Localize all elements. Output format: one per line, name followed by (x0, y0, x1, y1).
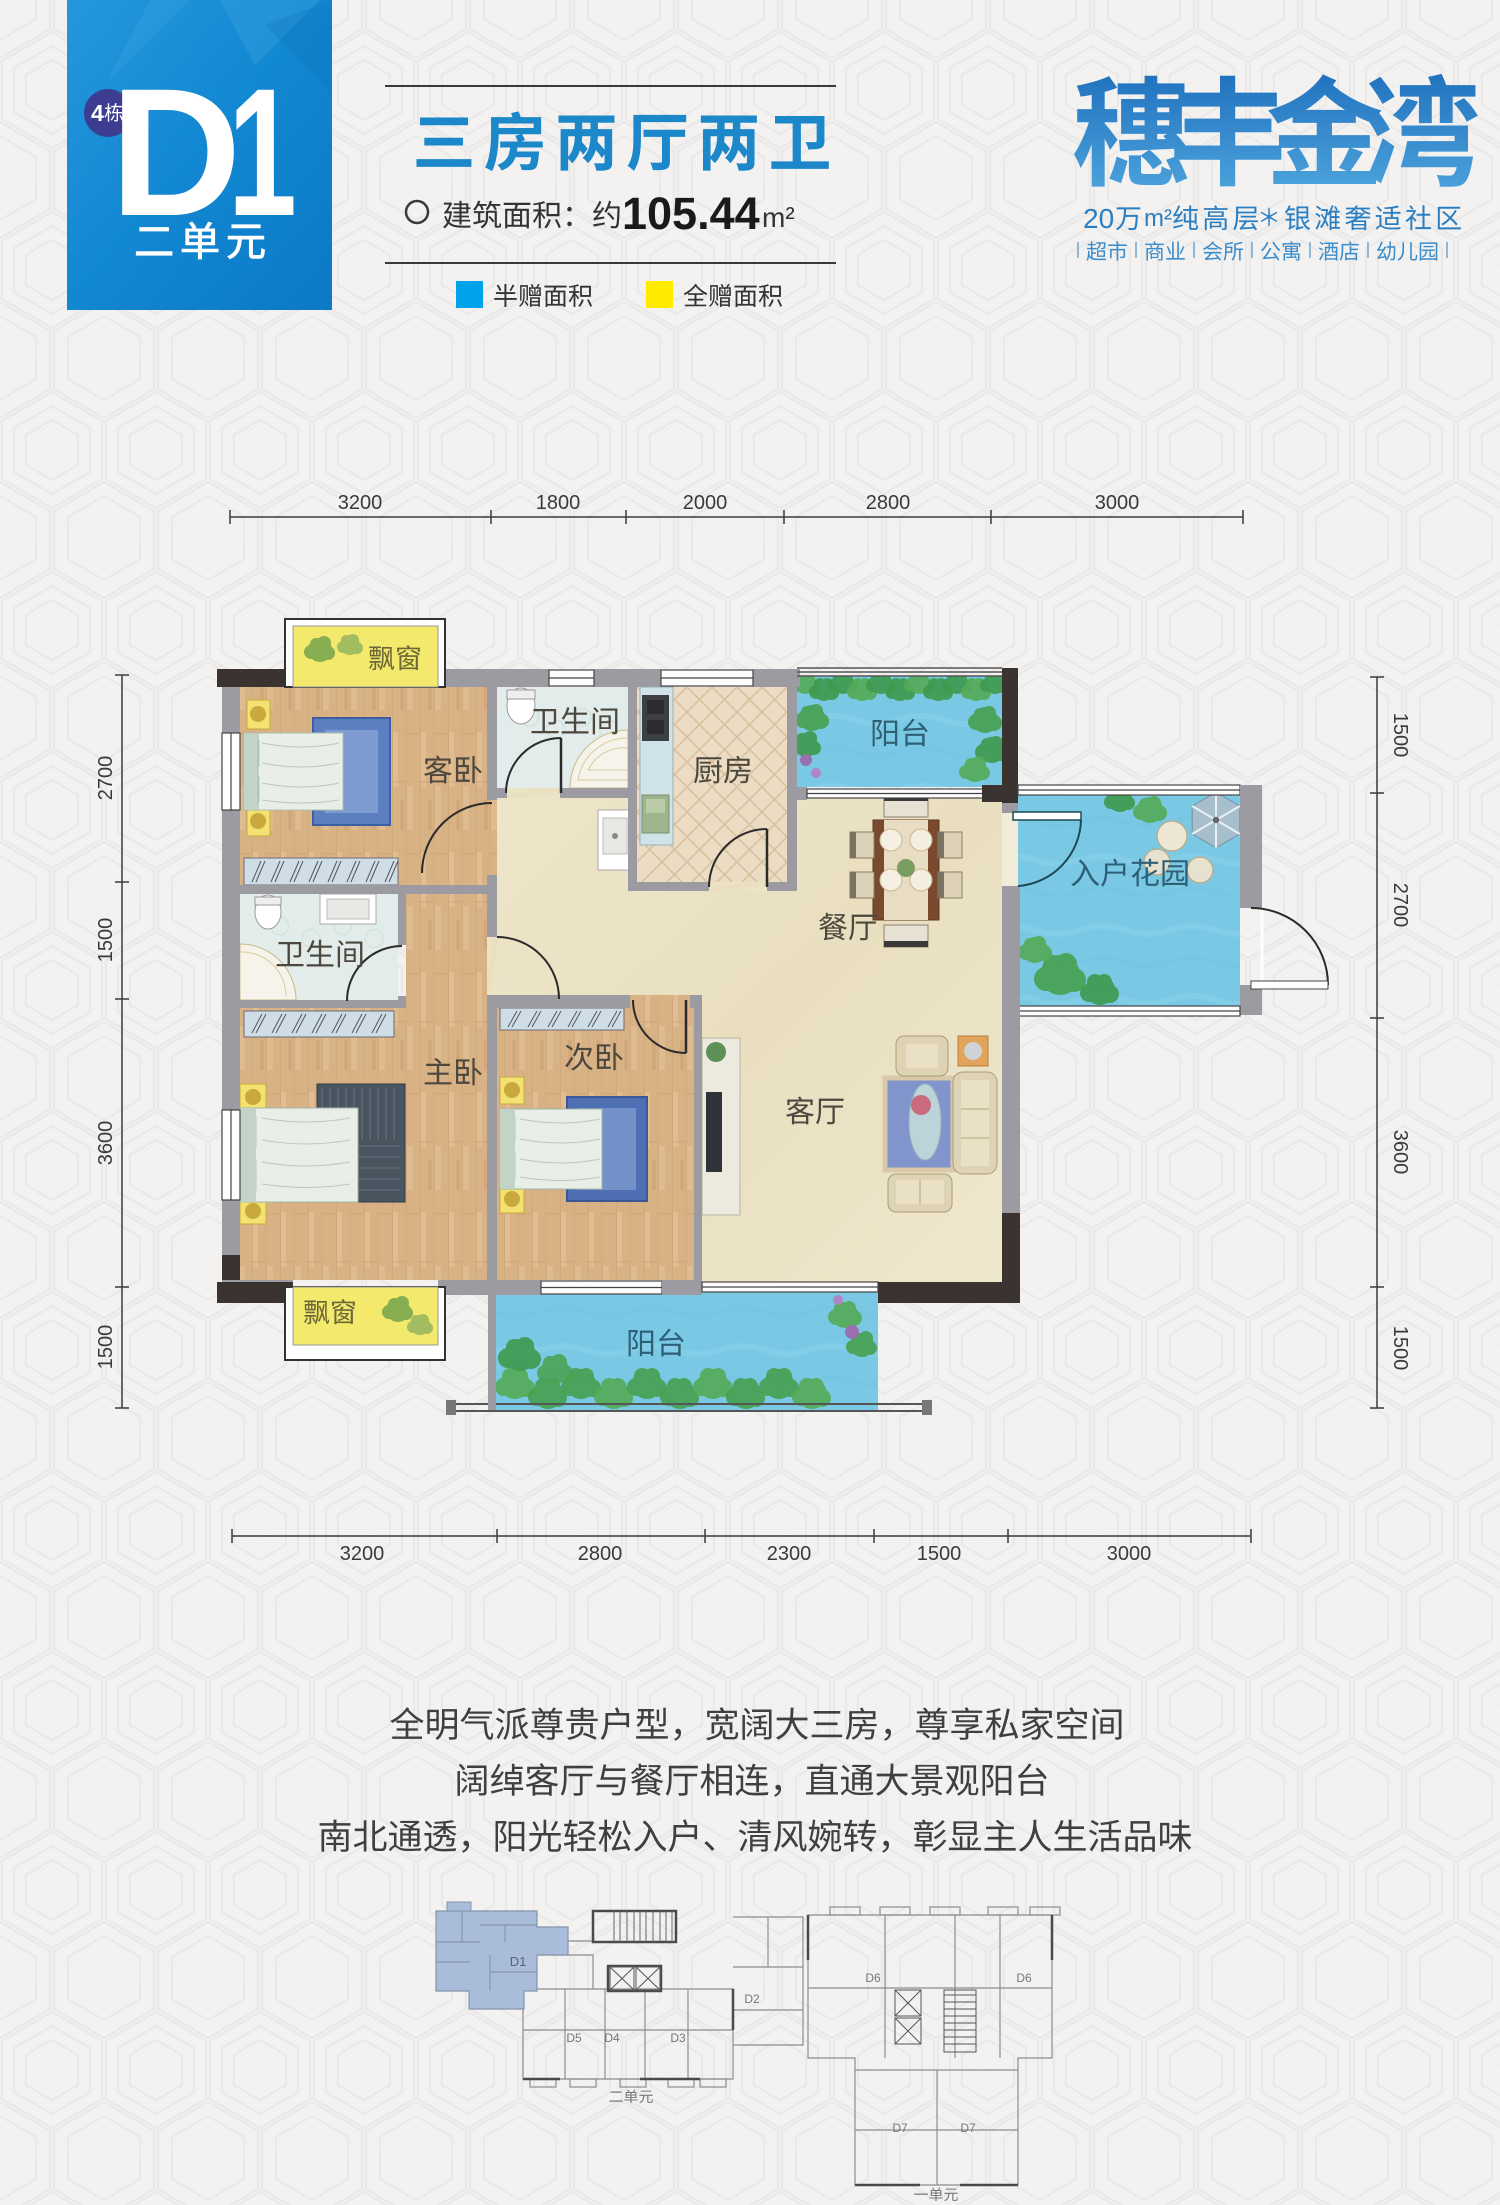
svg-text:D7: D7 (892, 2121, 908, 2135)
svg-text:D7: D7 (960, 2121, 976, 2135)
svg-text:D: D (110, 50, 241, 254)
svg-text:D3: D3 (670, 2031, 686, 2045)
svg-text:1500: 1500 (95, 1325, 117, 1370)
svg-text:20: 20 (1083, 203, 1114, 234)
svg-text:D5: D5 (566, 2031, 582, 2045)
svg-text:1500: 1500 (1389, 713, 1411, 758)
svg-text:D6: D6 (865, 1971, 881, 1985)
svg-text:3200: 3200 (340, 1543, 385, 1565)
svg-text:D6: D6 (1016, 1971, 1032, 1985)
svg-text:4: 4 (91, 100, 104, 126)
svg-text:m²: m² (762, 202, 795, 233)
svg-text:3200: 3200 (338, 492, 383, 514)
svg-text:D4: D4 (604, 2031, 620, 2045)
svg-text:1500: 1500 (917, 1543, 962, 1565)
svg-text:D2: D2 (744, 1992, 760, 2006)
svg-text:D1: D1 (510, 1954, 527, 1969)
svg-text:2800: 2800 (866, 492, 911, 514)
svg-text:2300: 2300 (767, 1543, 812, 1565)
svg-text:3000: 3000 (1107, 1543, 1152, 1565)
svg-text:2700: 2700 (1389, 883, 1411, 928)
svg-text:2800: 2800 (578, 1543, 623, 1565)
svg-text:m²: m² (1144, 205, 1172, 232)
svg-text:3600: 3600 (95, 1121, 117, 1166)
svg-text:2000: 2000 (683, 492, 728, 514)
svg-text:1800: 1800 (536, 492, 581, 514)
svg-text:2700: 2700 (95, 756, 117, 801)
svg-text:1: 1 (228, 50, 297, 253)
svg-text:1500: 1500 (95, 918, 117, 963)
svg-text:3000: 3000 (1095, 492, 1140, 514)
svg-text:105.44: 105.44 (622, 188, 760, 239)
svg-text:3600: 3600 (1389, 1130, 1411, 1175)
svg-text:1500: 1500 (1389, 1326, 1411, 1371)
